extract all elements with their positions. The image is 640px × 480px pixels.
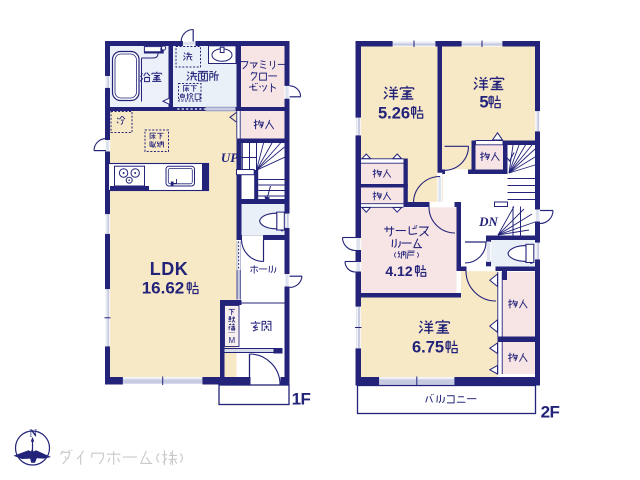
svg-text:DN: DN — [478, 214, 498, 229]
svg-text:M: M — [228, 336, 235, 345]
svg-text:5: 5 — [479, 94, 488, 112]
svg-text:4.12: 4.12 — [385, 263, 412, 279]
svg-text:N: N — [30, 429, 38, 440]
svg-text:1F: 1F — [292, 390, 311, 409]
svg-text:LDK: LDK — [150, 259, 189, 279]
svg-text:5.26: 5.26 — [378, 105, 410, 123]
svg-text:2F: 2F — [541, 403, 560, 422]
svg-text:16.62: 16.62 — [142, 279, 185, 298]
svg-text:6.75: 6.75 — [412, 339, 444, 357]
svg-text:UP: UP — [221, 150, 239, 165]
